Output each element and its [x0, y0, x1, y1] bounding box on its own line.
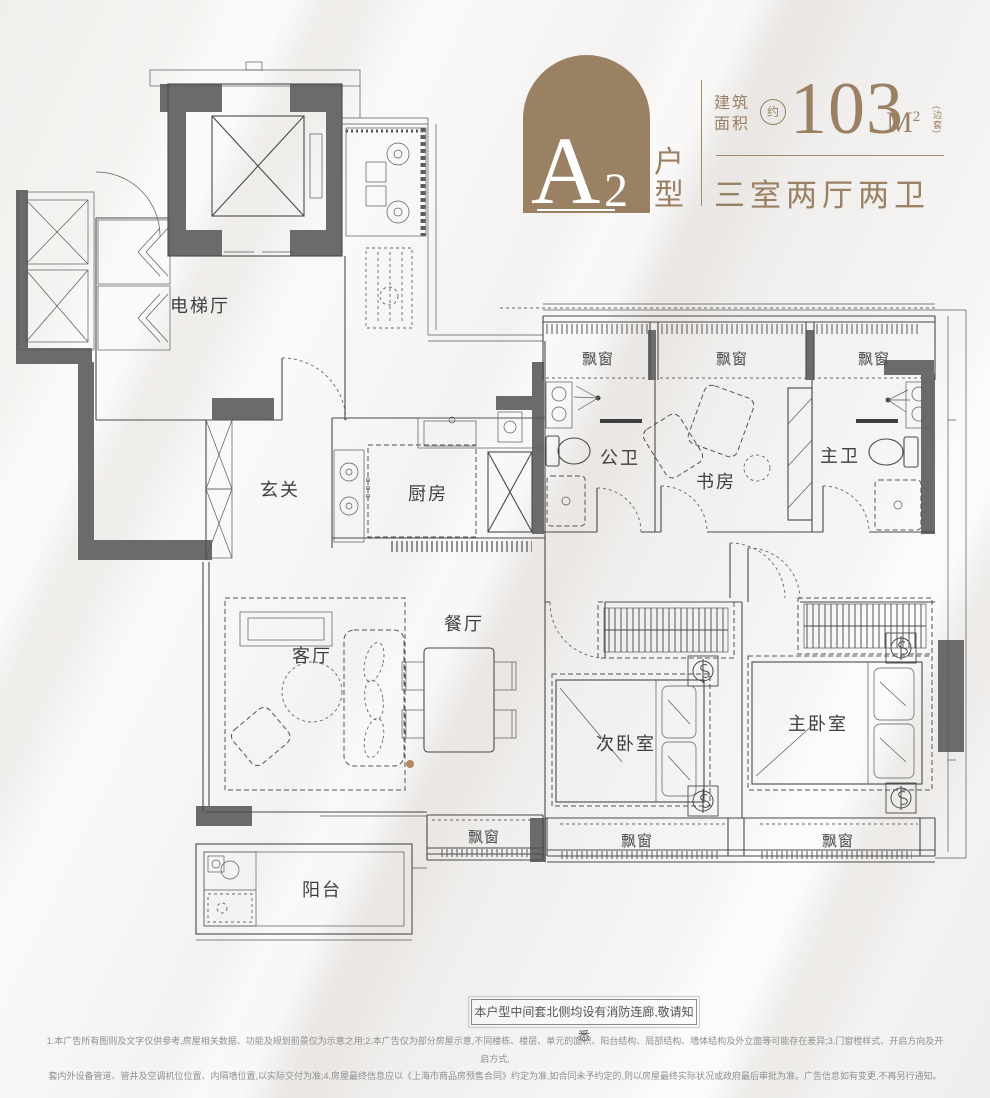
corridor — [543, 532, 935, 818]
floorplan-page: A 2 户 型 建筑 面积 约 103 M2 (边套) 三室两厅两卫 — [0, 0, 990, 1098]
bay-window-label: 飘窗 — [468, 828, 500, 846]
bay-window-label: 飘窗 — [582, 350, 614, 368]
bay-window-label: 飘窗 — [716, 350, 748, 368]
north-equipment-balcony — [342, 86, 543, 341]
master-bedroom: 主卧室 — [748, 598, 932, 813]
north-bay-windows: 飘窗 飘窗 飘窗 — [500, 304, 935, 380]
room-label-study: 书房 — [696, 472, 736, 492]
balcony: 阳台 — [196, 844, 427, 940]
living-room: 客厅 — [203, 562, 427, 816]
disclaimer-line-1: 1.本广告所有图则及文字仅供参考,房屋相关数据、功能及规划前景仅为示意之用;2.… — [45, 1033, 945, 1068]
master-bathroom: 主卫 — [820, 382, 932, 532]
second-bedroom: 次卧室 — [552, 602, 734, 816]
study: 书房 — [640, 380, 812, 532]
room-label-living: 客厅 — [292, 646, 332, 666]
room-label-kitchen: 厨房 — [408, 484, 448, 504]
bay-window-label: 飘窗 — [858, 350, 890, 368]
fire-corridor-notice: 本户型中间套北侧均设有消防连廊,敬请知悉 — [471, 999, 697, 1025]
disclaimer-line-2: 套内外设备管道、管井及空调机位位置、内隔墙位置,以实际交付为准;4.房屋最终信息… — [45, 1068, 945, 1086]
fire-corridor-edge — [935, 310, 966, 858]
room-label-master-bedroom: 主卧室 — [788, 714, 848, 734]
room-label-second-bedroom: 次卧室 — [596, 734, 656, 754]
room-label-dining: 餐厅 — [444, 614, 484, 634]
dining-room: 餐厅 — [402, 614, 516, 752]
room-label-balcony: 阳台 — [302, 880, 342, 900]
structural-walls — [16, 84, 964, 862]
public-bathroom: 公卫 — [546, 382, 642, 532]
south-bay-windows: 飘窗 飘窗 飘窗 — [427, 815, 935, 862]
room-label-foyer: 玄关 — [260, 480, 300, 500]
bay-window-label: 飘窗 — [822, 832, 854, 850]
room-label-public-bath: 公卫 — [600, 448, 640, 468]
room-label-master-bath: 主卫 — [820, 446, 860, 466]
bay-window-label: 飘窗 — [621, 832, 653, 850]
kitchen: 厨房 — [332, 341, 545, 552]
floor-plan: 飘窗 飘窗 飘窗 玄关 — [0, 0, 990, 1098]
disclaimer: 1.本广告所有图则及文字仅供参考,房屋相关数据、功能及规划前景仅为示意之用;2.… — [45, 1033, 945, 1086]
room-label-elevator-hall: 电梯厅 — [170, 296, 230, 316]
foyer: 玄关 — [206, 420, 300, 560]
